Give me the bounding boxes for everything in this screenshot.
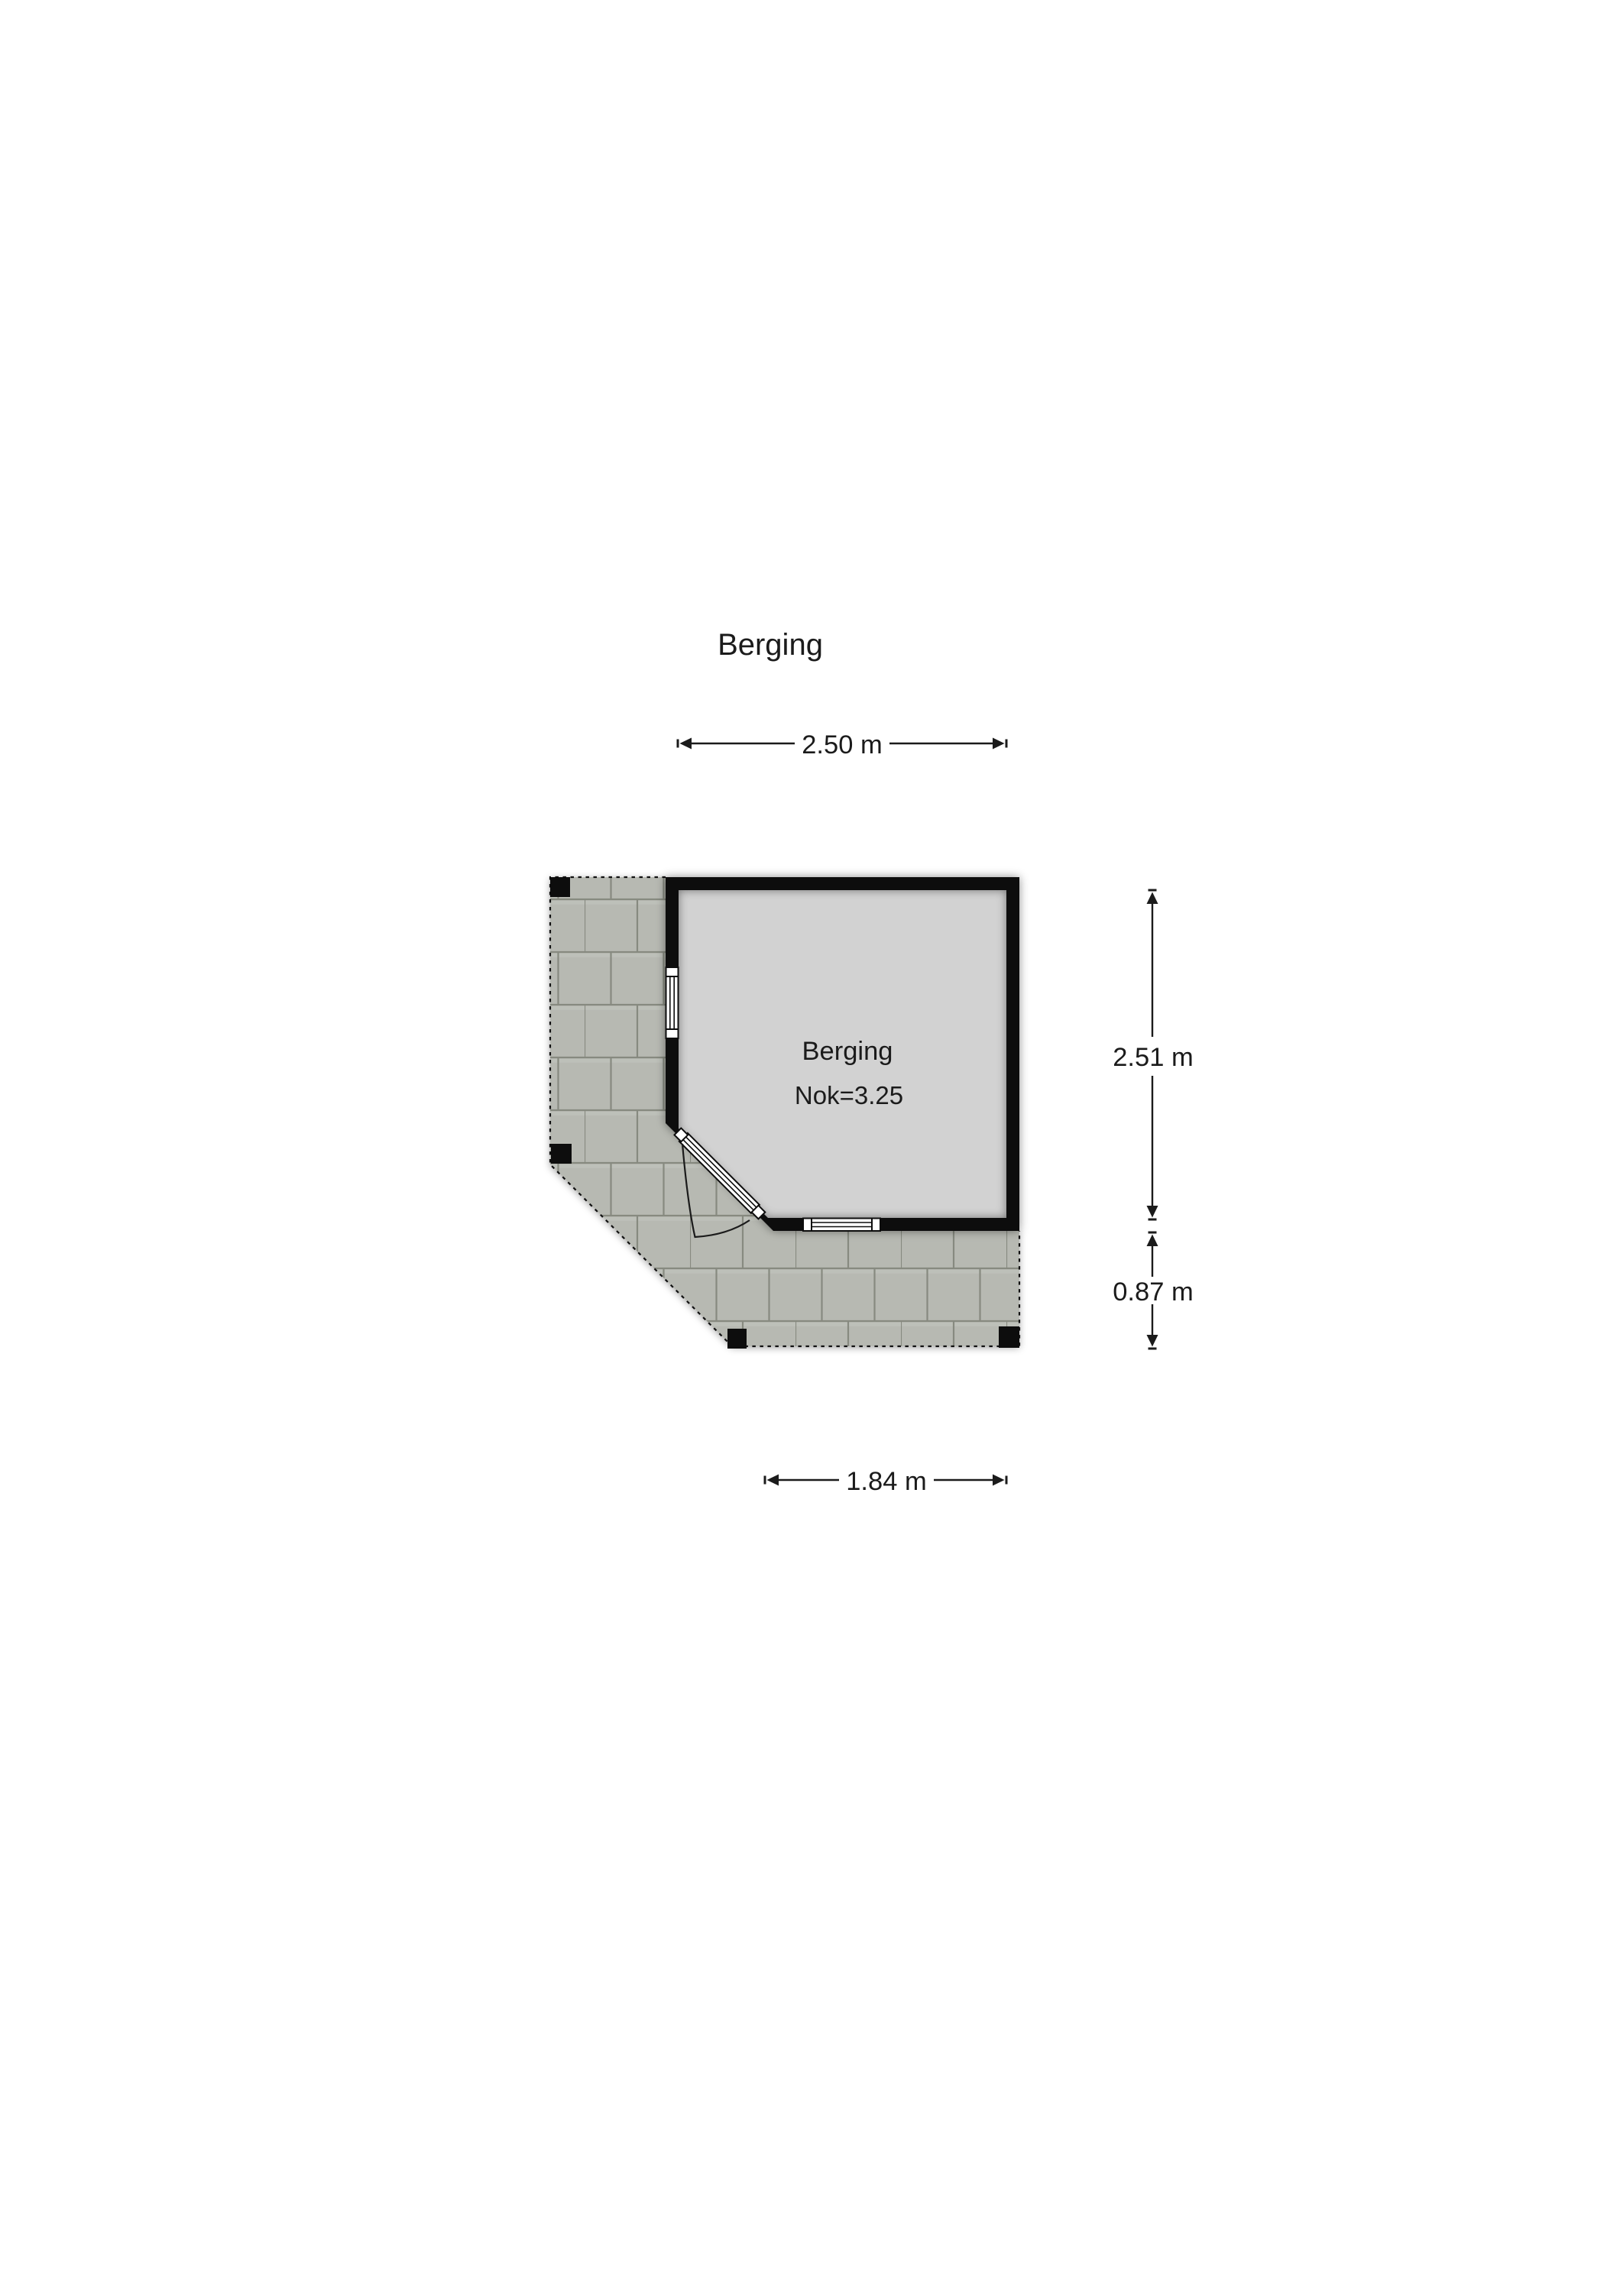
svg-text:Nok=3.25: Nok=3.25 xyxy=(795,1081,903,1109)
svg-text:0.87 m: 0.87 m xyxy=(1113,1278,1193,1307)
svg-text:Berging: Berging xyxy=(802,1037,893,1066)
svg-text:1.84 m: 1.84 m xyxy=(846,1467,926,1496)
svg-text:2.50 m: 2.50 m xyxy=(802,730,882,759)
svg-text:Berging: Berging xyxy=(718,628,823,662)
svg-text:2.51 m: 2.51 m xyxy=(1113,1043,1193,1072)
